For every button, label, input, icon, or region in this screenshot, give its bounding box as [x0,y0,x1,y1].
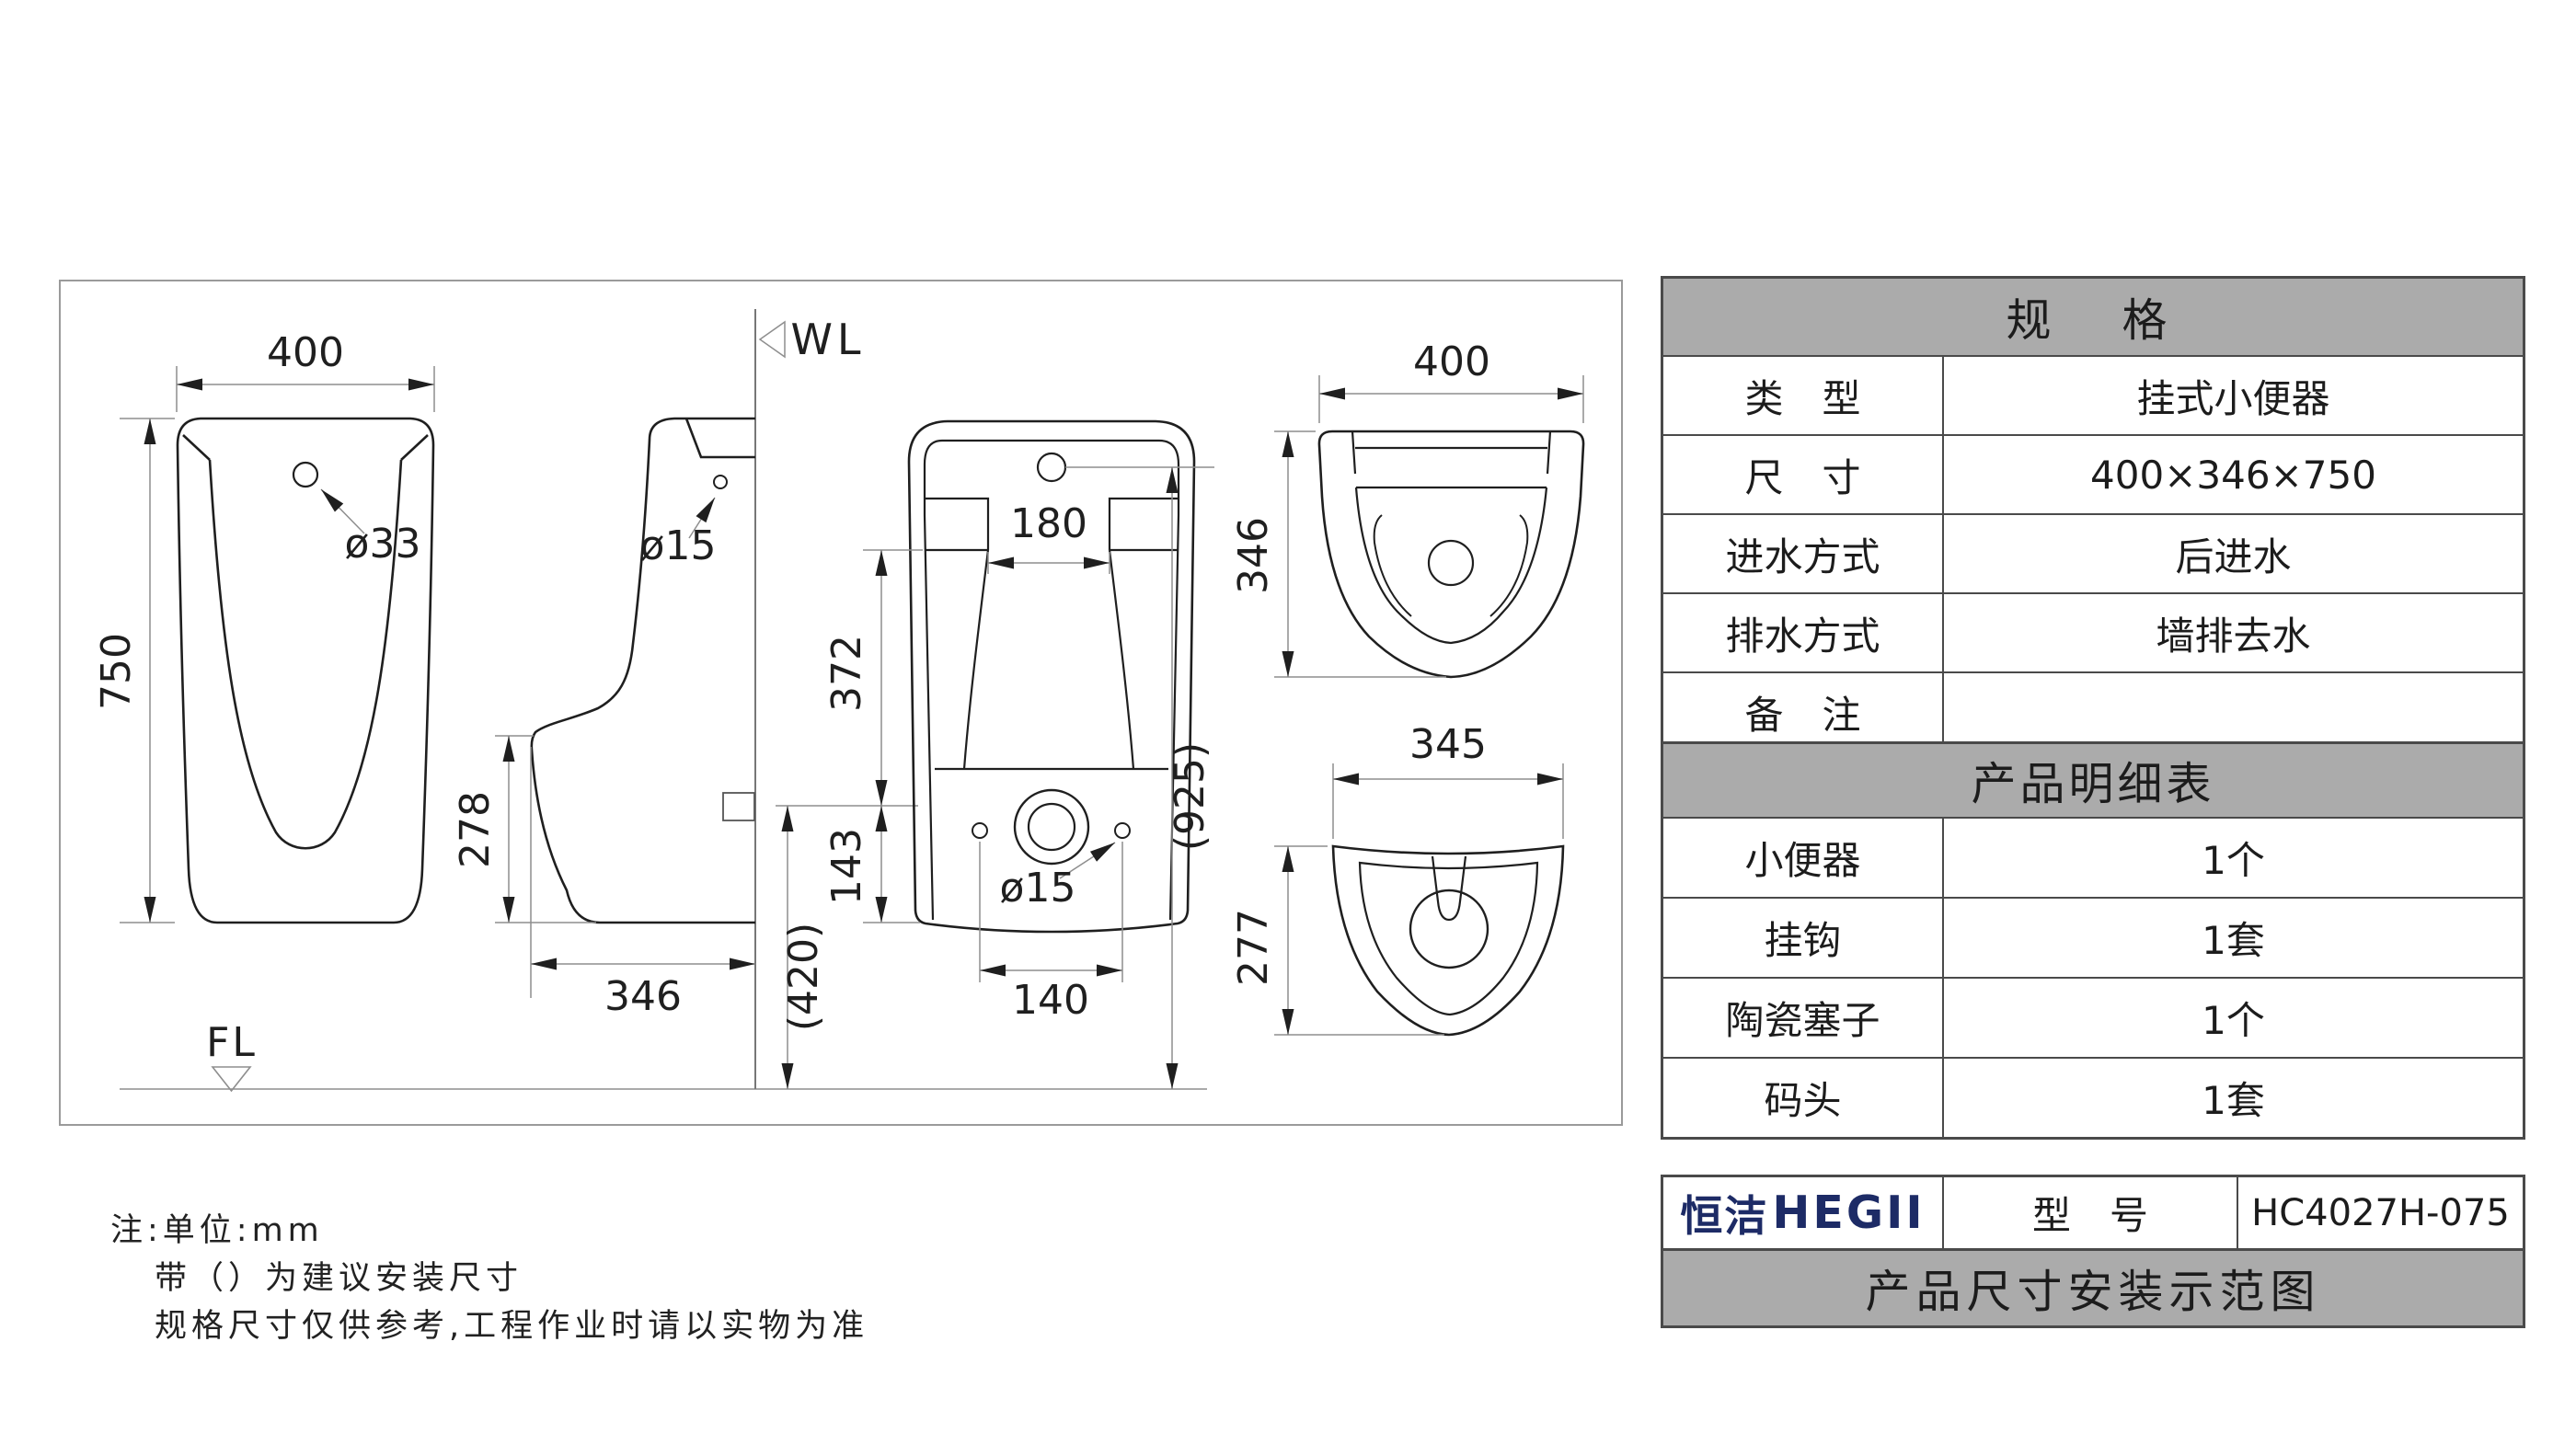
spec-remark-label: 备 注 [1663,673,1944,751]
brand-logo: 恒洁 HEGII [1663,1177,1944,1248]
brand-logo-cn: 恒洁 [1680,1183,1768,1244]
detail-table-title: 产品明细表 [1663,744,2523,817]
spec-table: 规 格 类 型 挂式小便器 尺 寸 400×346×750 进水方式 后进水 排… [1661,276,2525,753]
note-line: 带（）为建议安装尺寸 [110,1255,868,1302]
table-row: 小便器 1个 [1663,817,2523,897]
table-row: 排水方式 墙排去水 [1663,592,2523,671]
dim-front-height: 750 [93,633,140,710]
spec-drain-value: 墙排去水 [1944,594,2523,671]
brand-logo-en: HEGII [1772,1187,1925,1239]
dim-rear-opening: 180 [1010,500,1087,547]
table-row: 尺 寸 400×346×750 [1663,434,2523,513]
dim-inlet-height: (925) [1167,742,1213,851]
dim-side-bottom-depth: 346 [604,973,682,1020]
spec-drain-label: 排水方式 [1663,594,1944,671]
table-row: 挂钩 1套 [1663,897,2523,977]
title-block: 恒洁 HEGII 型 号 HC4027H-075 产品尺寸安装示范图 [1661,1175,2525,1328]
detail-bracket-label: 码头 [1663,1059,1944,1137]
spec-remark-value [1944,673,2523,751]
table-row: 码头 1套 [1663,1057,2523,1137]
spec-type-label: 类 型 [1663,357,1944,434]
spec-inlet-label: 进水方式 [1663,515,1944,592]
spec-size-value: 400×346×750 [1944,436,2523,513]
dim-top-width: 400 [1413,338,1490,385]
spec-table-title: 规 格 [1663,279,2523,355]
top-view-dims [1274,375,1583,677]
model-value: HC4027H-075 [2238,1177,2523,1248]
table-row: 类 型 挂式小便器 [1663,355,2523,434]
spec-type-value: 挂式小便器 [1944,357,2523,434]
spec-size-label: 尺 寸 [1663,436,1944,513]
model-label: 型 号 [1944,1177,2238,1248]
dim-bottom-width: 345 [1409,721,1487,768]
wall-label: WL [790,315,865,364]
table-row: 进水方式 后进水 [1663,513,2523,592]
side-view [532,419,755,923]
floor-level-icon [213,1067,250,1091]
rear-view [909,421,1194,932]
detail-table: 产品明细表 小便器 1个 挂钩 1套 陶瓷塞子 1个 码头 1套 [1661,741,2525,1140]
page: 400 750 ø33 FL WL ø15 278 346 (420) [0,0,2576,1445]
drawing-caption: 产品尺寸安装示范图 [1661,1248,2525,1328]
detail-plug-qty: 1个 [1944,979,2523,1057]
dim-top-depth: 346 [1230,517,1277,594]
spec-inlet-value: 后进水 [1944,515,2523,592]
dim-outlet-height: (420) [780,923,827,1031]
dim-bottom-depth: 277 [1230,909,1277,986]
water-level-icon [760,322,785,357]
dim-rear-upper: 372 [823,635,870,712]
dim-front-width: 400 [267,329,344,376]
detail-plug-label: 陶瓷塞子 [1663,979,1944,1057]
dim-rear-holes: ø15 [1000,865,1076,912]
dim-side-depth-lower: 278 [452,791,499,868]
note-line: 规格尺寸仅供参考,工程作业时请以实物为准 [110,1302,868,1350]
top-view [1319,431,1583,677]
detail-urinal-label: 小便器 [1663,819,1944,897]
table-row: 备 注 [1663,671,2523,751]
front-view-dims [120,366,434,1091]
dim-rear-hole-spacing: 140 [1012,977,1089,1024]
bottom-view [1333,846,1563,1035]
bottom-view-dims [1274,763,1563,1035]
dim-rear-lower: 143 [823,828,870,905]
floor-label: FL [206,1019,258,1066]
detail-hook-label: 挂钩 [1663,899,1944,977]
front-view [178,419,433,923]
dim-front-inlet-hole: ø33 [345,521,421,568]
dim-side-hole: ø15 [640,522,717,569]
detail-bracket-qty: 1套 [1944,1059,2523,1137]
detail-urinal-qty: 1个 [1944,819,2523,897]
detail-hook-qty: 1套 [1944,899,2523,977]
table-row: 陶瓷塞子 1个 [1663,977,2523,1057]
notes: 注:单位:mm 带（）为建议安装尺寸 规格尺寸仅供参考,工程作业时请以实物为准 [110,1207,868,1350]
note-line: 注:单位:mm [110,1207,868,1255]
